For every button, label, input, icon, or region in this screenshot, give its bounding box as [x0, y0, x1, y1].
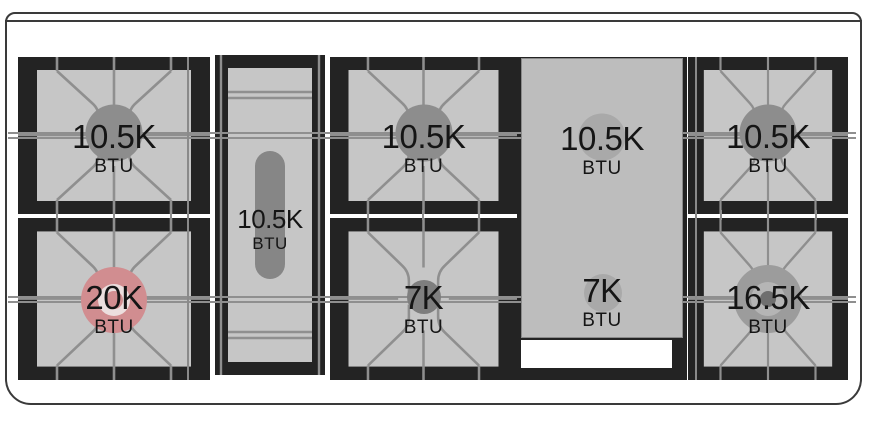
grate-tick: [113, 210, 115, 220]
griddle-rear-label: 10.5K BTU: [522, 121, 682, 180]
btu-value: 20K: [18, 280, 210, 316]
range-frame-top-edge: [5, 20, 862, 22]
burner-left-rear[interactable]: 10.5K BTU: [18, 57, 210, 214]
btu-value: 16.5K: [688, 280, 848, 316]
burner-label: 10.5K BTU: [330, 119, 517, 178]
btu-value: 7K: [330, 280, 517, 316]
grate-tick: [815, 210, 817, 220]
btu-unit: BTU: [18, 317, 210, 339]
burner-label: 10.5K BTU: [18, 119, 210, 178]
btu-unit: BTU: [330, 156, 517, 178]
burner-label: 10.5K BTU: [215, 205, 325, 254]
griddle-plate: 10.5K BTU 7K BTU: [521, 58, 683, 338]
btu-unit: BTU: [330, 317, 517, 339]
burner-center-oval[interactable]: 10.5K BTU: [215, 55, 325, 375]
btu-value: 10.5K: [330, 119, 517, 155]
burner-label: 7K BTU: [330, 280, 517, 339]
burner-middle-front[interactable]: 7K BTU: [330, 218, 517, 380]
btu-unit: BTU: [688, 317, 848, 339]
grate-tick: [478, 210, 480, 220]
btu-value: 10.5K: [522, 121, 682, 157]
grate-tick: [767, 210, 769, 220]
btu-unit: BTU: [215, 234, 325, 254]
burner-label: 20K BTU: [18, 280, 210, 339]
btu-unit: BTU: [522, 310, 682, 332]
btu-unit: BTU: [522, 158, 682, 180]
griddle[interactable]: 10.5K BTU 7K BTU: [517, 57, 687, 380]
btu-unit: BTU: [688, 156, 848, 178]
burner-left-front[interactable]: 20K BTU: [18, 218, 210, 380]
griddle-front-opening: [521, 340, 672, 368]
grate-tick: [720, 210, 722, 220]
burner-right-front[interactable]: 16.5K BTU: [688, 218, 848, 380]
btu-value: 10.5K: [215, 205, 325, 233]
grate-tick: [367, 210, 369, 220]
burner-label: 10.5K BTU: [688, 119, 848, 178]
btu-value: 10.5K: [688, 119, 848, 155]
btu-unit: BTU: [18, 156, 210, 178]
grate-tick: [56, 210, 58, 220]
grate-tick: [170, 210, 172, 220]
range-cooktop-diagram: 10.5K BTU 20K BTU 10.5K BTU 10.5K BTU: [0, 0, 872, 424]
griddle-front-label: 7K BTU: [522, 273, 682, 332]
burner-middle-rear[interactable]: 10.5K BTU: [330, 57, 517, 214]
burner-label: 16.5K BTU: [688, 280, 848, 339]
btu-value: 7K: [522, 273, 682, 309]
burner-right-rear[interactable]: 10.5K BTU: [688, 57, 848, 214]
grate-tick: [422, 210, 424, 220]
btu-value: 10.5K: [18, 119, 210, 155]
